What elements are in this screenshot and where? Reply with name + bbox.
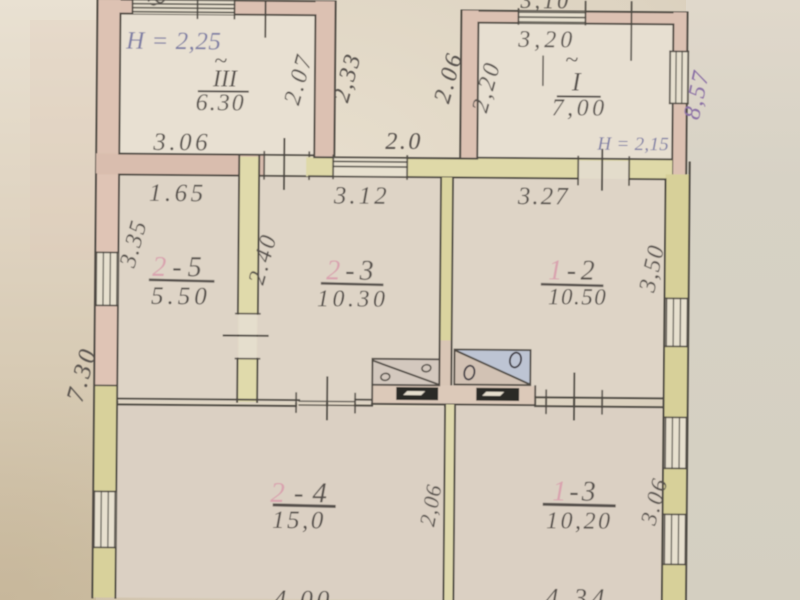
svg-text:2-3: 2-3 xyxy=(326,255,379,286)
svg-text:3.12: 3.12 xyxy=(333,182,390,209)
svg-text:4,00: 4,00 xyxy=(273,585,333,600)
svg-text:3.27: 3.27 xyxy=(517,183,570,210)
svg-text:5.50: 5.50 xyxy=(151,283,211,311)
svg-text:I: I xyxy=(571,67,582,96)
svg-text:10.50: 10.50 xyxy=(548,284,607,310)
svg-text:10.30: 10.30 xyxy=(317,286,389,313)
svg-text:III: III xyxy=(212,66,238,92)
svg-text:H = 2,15: H = 2,15 xyxy=(596,134,669,156)
svg-text:7,00: 7,00 xyxy=(552,95,608,121)
svg-text:15,0: 15,0 xyxy=(272,507,326,534)
svg-text:10,20: 10,20 xyxy=(546,508,613,535)
svg-text:4,34: 4,34 xyxy=(545,583,609,600)
svg-text:1.65: 1.65 xyxy=(149,180,207,208)
svg-text:2.0: 2.0 xyxy=(385,129,423,155)
svg-text:3.06: 3.06 xyxy=(152,129,211,157)
svg-text:2-5: 2-5 xyxy=(152,252,208,283)
svg-text:1-3: 1-3 xyxy=(552,476,599,507)
svg-text:H = 2,25: H = 2,25 xyxy=(125,28,221,56)
svg-text:6.30: 6.30 xyxy=(196,90,246,116)
svg-text:1-2: 1-2 xyxy=(548,255,599,286)
svg-text:3,10: 3,10 xyxy=(520,0,572,13)
